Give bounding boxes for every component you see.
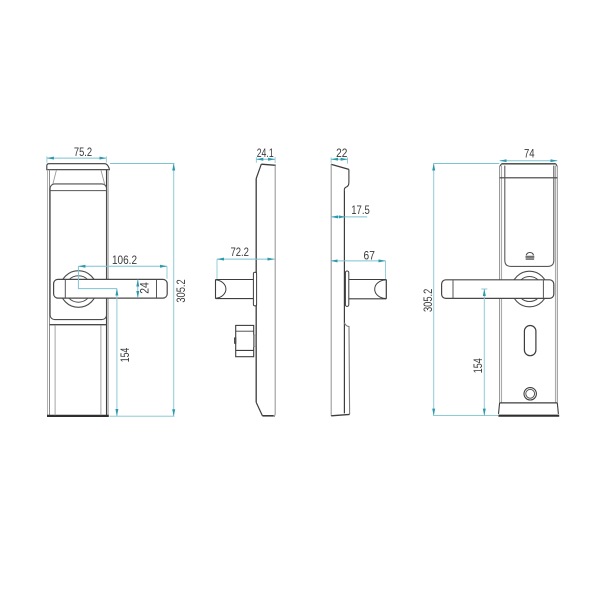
svg-text:72.2: 72.2 [230, 245, 249, 259]
svg-text:305.2: 305.2 [421, 288, 435, 312]
svg-text:74: 74 [524, 146, 535, 160]
svg-text:24.1: 24.1 [257, 146, 274, 160]
svg-text:17.5: 17.5 [351, 203, 370, 217]
svg-text:75.2: 75.2 [74, 145, 92, 159]
svg-text:305.2: 305.2 [174, 279, 188, 303]
svg-text:154: 154 [118, 348, 132, 363]
svg-text:106.2: 106.2 [112, 253, 137, 267]
svg-text:154: 154 [471, 358, 485, 373]
svg-text:24: 24 [138, 282, 152, 294]
svg-text:22: 22 [336, 146, 348, 160]
